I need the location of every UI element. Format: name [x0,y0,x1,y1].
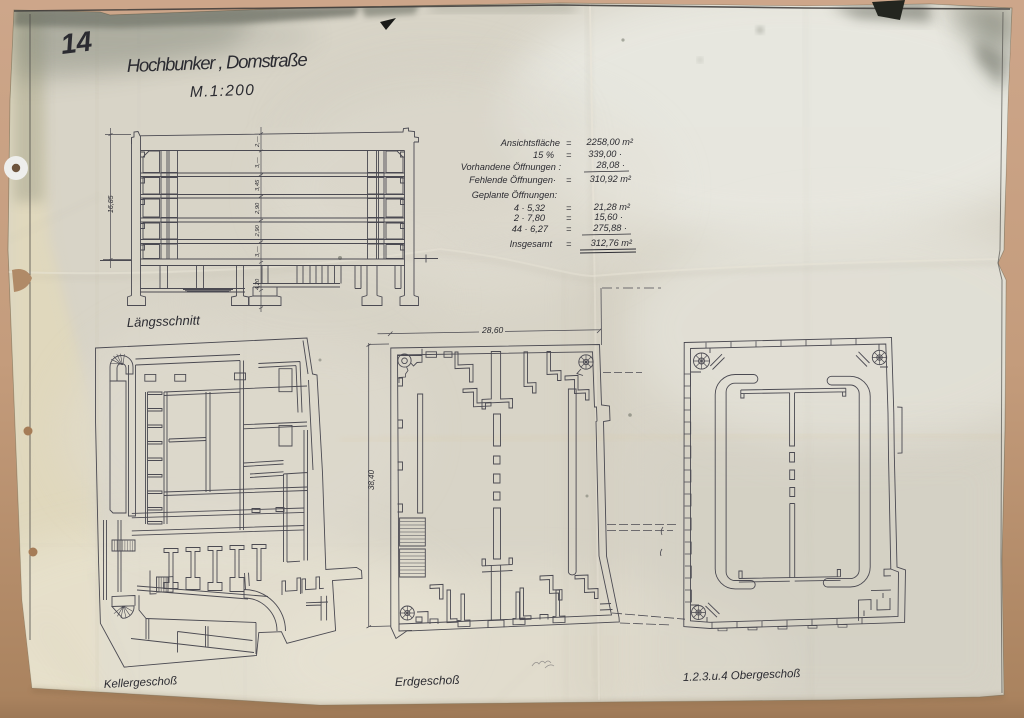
svg-text:15 %: 15 % [533,150,554,160]
svg-text:4,20: 4,20 [255,278,261,290]
svg-text:44 · 6,27: 44 · 6,27 [512,224,549,234]
svg-text:15,60 ·: 15,60 · [594,212,623,222]
svg-text:Geplante Öffnungen:: Geplante Öffnungen: [472,190,558,200]
svg-text:21,28 m²: 21,28 m² [593,202,631,212]
svg-text:=: = [566,224,572,234]
svg-text:28,60: 28,60 [481,325,504,335]
svg-text:275,88 ·: 275,88 · [592,223,627,233]
svg-text:Insgesamt: Insgesamt [510,239,553,249]
svg-text:339,00 ·: 339,00 · [588,149,622,159]
svg-text:Ansichtsfläche: Ansichtsfläche [500,138,560,148]
svg-text:=: = [566,175,572,185]
svg-text:310,92 m²: 310,92 m² [590,174,632,184]
svg-text:28,08 ·: 28,08 · [595,160,625,170]
svg-text:=: = [566,150,572,160]
svg-text:3,—: 3,— [255,157,261,168]
svg-text:2,90: 2,90 [255,202,261,215]
svg-text:2,90: 2,90 [255,224,261,237]
svg-text:Fehlende Öffnungen·: Fehlende Öffnungen· [469,175,556,185]
svg-text:3,45: 3,45 [255,179,261,191]
svg-text:3,—: 3,— [255,246,261,257]
svg-text:=: = [566,203,572,213]
svg-text:Erdgeschoß: Erdgeschoß [395,673,460,689]
svg-text:2 · 7,80: 2 · 7,80 [513,213,546,223]
svg-text:14: 14 [59,25,94,60]
svg-text:Vorhandene Öffnungen :: Vorhandene Öffnungen : [461,162,562,172]
svg-text:=: = [566,213,572,223]
svg-text:Längsschnitt: Längsschnitt [127,312,202,330]
svg-text:312,76 m²: 312,76 m² [591,238,633,248]
svg-text:16,85: 16,85 [108,195,115,213]
svg-text:=: = [566,239,572,249]
svg-text:2,—: 2,— [255,136,261,148]
svg-text:M.1:200: M.1:200 [190,82,255,101]
svg-text:2258,00 m²: 2258,00 m² [586,137,634,147]
svg-text:=: = [566,138,572,148]
svg-text:4 · 5,32: 4 · 5,32 [514,203,545,213]
